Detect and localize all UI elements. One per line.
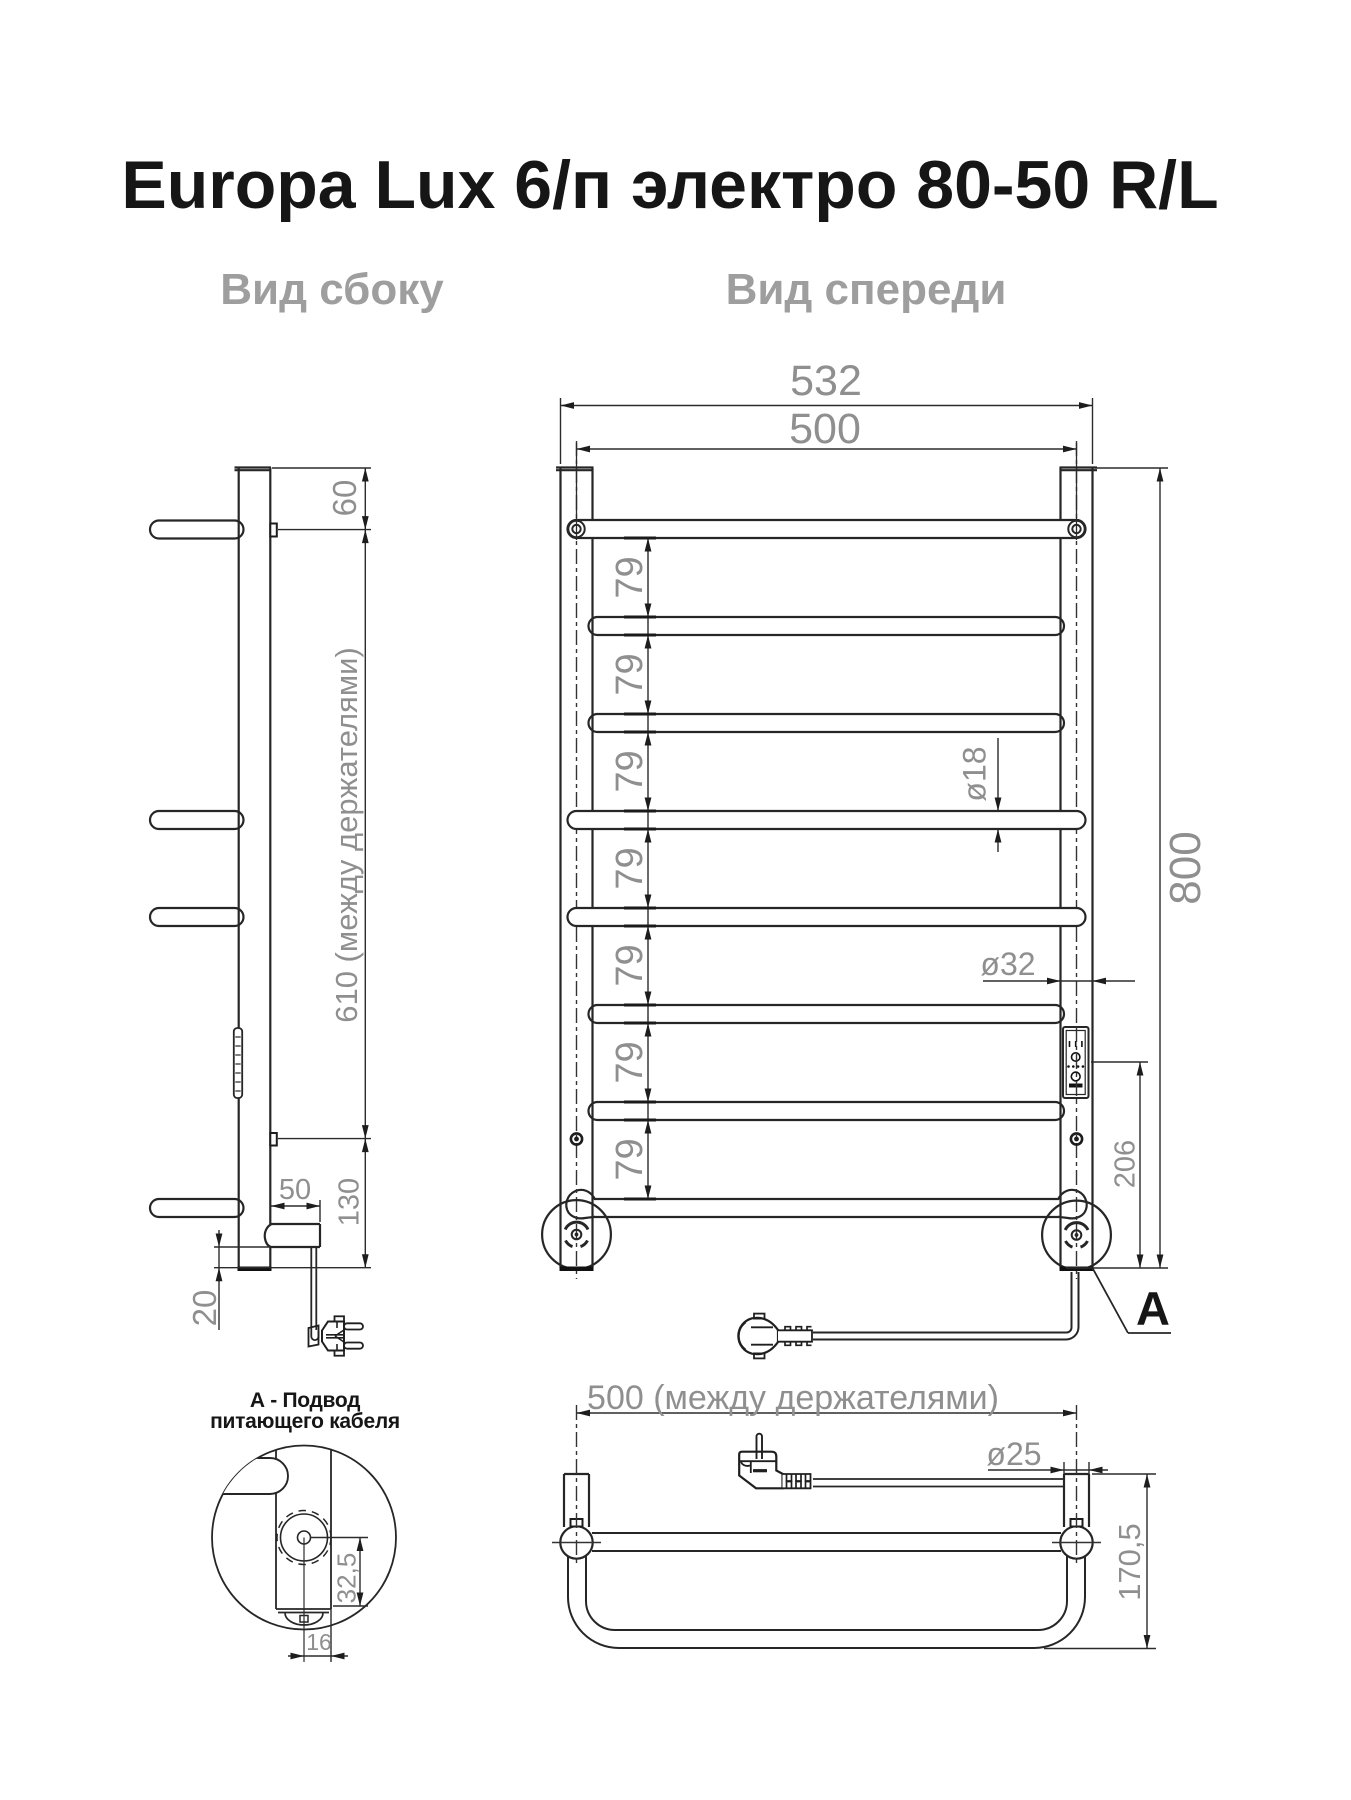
svg-text:60: 60 (326, 480, 363, 517)
svg-text:питающего кабеля: питающего кабеля (210, 1410, 400, 1433)
svg-text:532: 532 (790, 357, 862, 405)
svg-text:79: 79 (609, 556, 651, 598)
svg-text:ø18: ø18 (957, 746, 993, 801)
svg-text:79: 79 (609, 847, 651, 889)
svg-text:А - Подвод: А - Подвод (250, 1389, 360, 1412)
svg-text:ø32: ø32 (980, 946, 1035, 982)
svg-text:ø25: ø25 (986, 1436, 1041, 1472)
svg-text:79: 79 (609, 944, 651, 986)
svg-text:Вид спереди: Вид спереди (726, 265, 1007, 314)
svg-text:50: 50 (279, 1174, 311, 1206)
svg-text:16: 16 (306, 1629, 332, 1655)
svg-text:32,5: 32,5 (332, 1553, 362, 1604)
svg-text:20: 20 (186, 1290, 223, 1327)
svg-text:79: 79 (609, 1041, 651, 1083)
svg-text:130: 130 (334, 1178, 366, 1226)
svg-text:Europa Lux 6/п электро 80-50 R: Europa Lux 6/п электро 80-50 R/L (121, 147, 1218, 223)
svg-text:Вид сбоку: Вид сбоку (220, 265, 444, 314)
svg-text:79: 79 (609, 653, 651, 695)
svg-text:79: 79 (609, 750, 651, 792)
svg-text:500: 500 (789, 405, 861, 453)
svg-text:500 (между держателями): 500 (между держателями) (587, 1379, 999, 1417)
svg-text:610 (между держателями): 610 (между держателями) (329, 647, 364, 1023)
svg-text:206: 206 (1110, 1140, 1142, 1188)
svg-text:800: 800 (1161, 831, 1210, 904)
svg-text:А: А (1136, 1282, 1170, 1335)
svg-text:79: 79 (609, 1138, 651, 1180)
svg-text:170,5: 170,5 (1112, 1523, 1147, 1601)
